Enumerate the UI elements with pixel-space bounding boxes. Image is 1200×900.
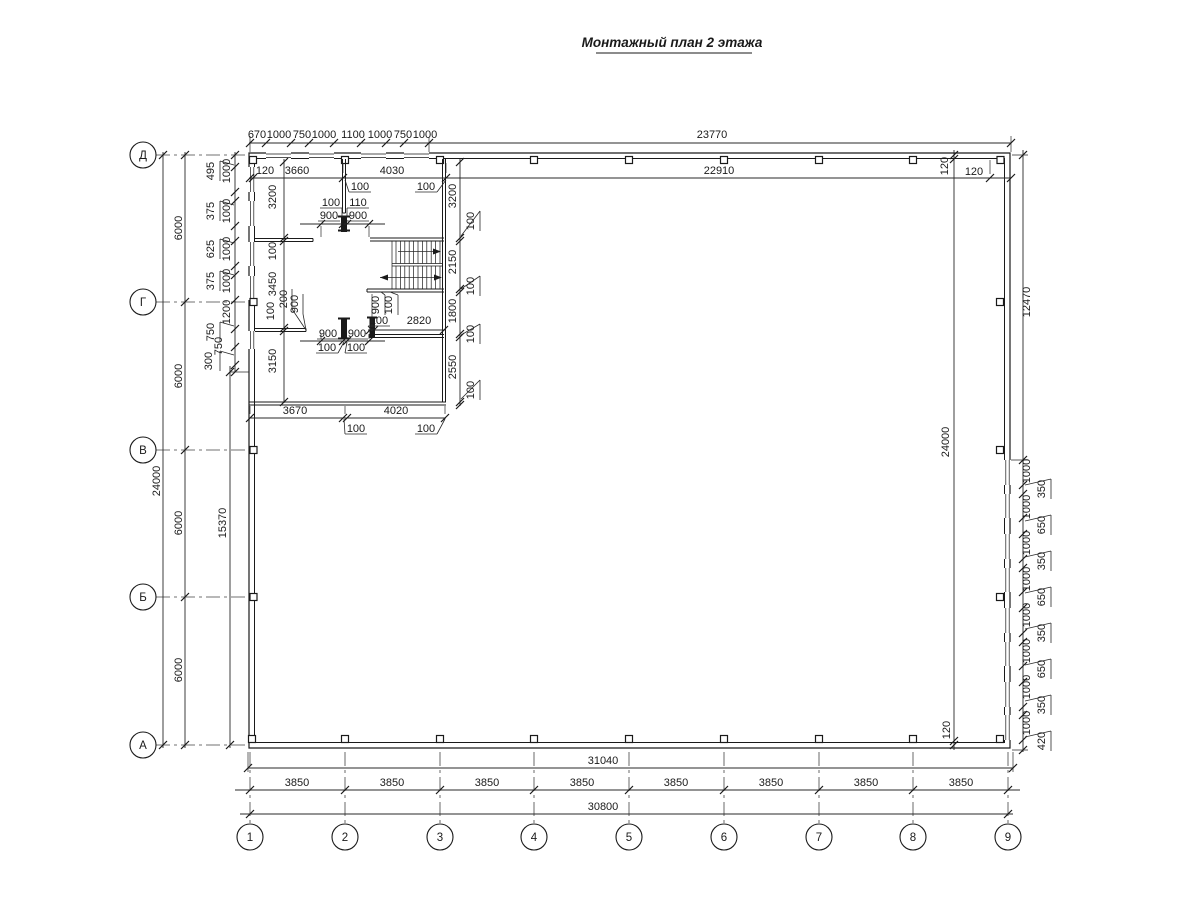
dim-label: 3670 (283, 405, 307, 417)
dim-label: 100 (370, 315, 388, 327)
dim-label: 900 (319, 328, 337, 340)
leader-lines (220, 161, 1051, 751)
dim-label: 1000 (267, 129, 291, 141)
axis-col-label: 2 (342, 832, 348, 844)
axis-markers-cols: 1 2 3 4 5 6 7 8 9 (237, 824, 1021, 850)
dim-label: 1000 (413, 129, 437, 141)
dimension-labels-left-windows: 495 375 625 375 750 300 1000 1000 1000 1… (203, 159, 233, 370)
dim-label: 3200 (447, 184, 459, 208)
dim-label: 100 (322, 197, 340, 209)
dim-label: 1200 (221, 300, 233, 324)
dim-label: 2150 (447, 250, 459, 274)
dim-label: 22910 (704, 165, 735, 177)
dim-label: 31040 (588, 755, 619, 767)
dimension-labels-right: 24000 12470 120 1000 1000 1000 1000 1000… (940, 287, 1048, 750)
window-openings (248, 152, 1011, 740)
axis-row-label: Б (139, 592, 147, 604)
dim-label: 6000 (173, 658, 185, 682)
dim-label: 100 (351, 181, 369, 193)
dim-label: 3150 (267, 349, 279, 373)
dim-label: 100 (347, 423, 365, 435)
axis-col-label: 6 (721, 832, 727, 844)
dim-label: 120 (941, 721, 953, 739)
dim-label: 120 (256, 165, 274, 177)
dim-label: 100 (318, 342, 336, 354)
axis-row-label: Д (139, 150, 147, 162)
dim-label: 100 (465, 325, 477, 343)
dim-label: 375 (205, 272, 217, 290)
dim-label: 15370 (217, 508, 229, 539)
dim-label: 420 (1036, 732, 1048, 750)
axis-col-label: 7 (816, 832, 822, 844)
dim-label: 3850 (380, 777, 404, 789)
dim-label: 24000 (940, 427, 952, 458)
axis-col-label: 4 (531, 832, 538, 844)
dim-label: 2550 (447, 355, 459, 379)
dim-label: 6000 (173, 216, 185, 240)
dim-label: 3850 (570, 777, 594, 789)
dim-label: 350 (1036, 696, 1048, 714)
dim-label: 30800 (588, 801, 619, 813)
dim-label: 900 (349, 210, 367, 222)
dim-label: 1000 (1021, 639, 1033, 663)
dim-label: 350 (1036, 480, 1048, 498)
dim-label: 900 (289, 295, 301, 313)
stair-arrow-right-icon (434, 275, 442, 281)
dim-label: 670 (248, 129, 266, 141)
dim-label: 900 (320, 210, 338, 222)
floor-plan-drawing: Монтажный план 2 этажа (0, 0, 1200, 900)
dim-label: 6000 (173, 511, 185, 535)
axis-row-label: А (139, 740, 147, 752)
dim-label: 1000 (1021, 567, 1033, 591)
dim-label: 900 (370, 296, 382, 314)
dim-label: 100 (347, 342, 365, 354)
dim-label: 100 (267, 242, 279, 260)
dim-label: 650 (1036, 588, 1048, 606)
dim-label: 1000 (221, 199, 233, 223)
dim-label: 750 (293, 129, 311, 141)
dim-label: 750 (394, 129, 412, 141)
dim-label: 120 (939, 157, 951, 175)
dim-label: 100 (465, 381, 477, 399)
dim-label: 350 (1036, 624, 1048, 642)
dim-label: 3850 (285, 777, 309, 789)
dim-label: 1000 (1021, 603, 1033, 627)
dim-label: 1000 (1021, 459, 1033, 483)
dim-label: 1000 (221, 159, 233, 183)
axis-row-label: Г (140, 297, 147, 309)
dimension-lines (163, 143, 1023, 814)
dim-label: 900 (348, 328, 366, 340)
axis-col-label: 9 (1005, 832, 1011, 844)
dim-label: 120 (965, 166, 983, 178)
dim-label: 6000 (173, 364, 185, 388)
dim-label: 3660 (285, 165, 309, 177)
dim-label: 1800 (447, 299, 459, 323)
dim-label: 1000 (221, 237, 233, 261)
stair-arrow-left-icon (380, 275, 388, 281)
dim-label: 100 (465, 212, 477, 230)
dim-label: 495 (205, 162, 217, 180)
columns (249, 157, 1005, 743)
dim-label: 1000 (368, 129, 392, 141)
dim-label: 1000 (1021, 675, 1033, 699)
dim-label: 1000 (1021, 495, 1033, 519)
dim-label: 100 (417, 423, 435, 435)
dim-label: 3850 (475, 777, 499, 789)
axis-col-label: 5 (626, 832, 632, 844)
dim-label: 625 (205, 240, 217, 258)
dim-label: 1000 (1021, 711, 1033, 735)
dim-label: 4030 (380, 165, 404, 177)
dim-label: 1000 (221, 269, 233, 293)
dim-label: 750 (213, 337, 225, 355)
dim-label: 350 (1036, 552, 1048, 570)
dim-label: 1100 (341, 129, 365, 141)
dim-label: 12470 (1021, 287, 1033, 318)
perimeter-walls (249, 153, 1010, 748)
dim-label: 100 (383, 296, 395, 314)
dim-label: 100 (265, 302, 277, 320)
dim-label: 650 (1036, 660, 1048, 678)
drawing-title: Монтажный план 2 этажа (582, 35, 763, 50)
dim-label: 1000 (1021, 531, 1033, 555)
dim-label: 1000 (312, 129, 336, 141)
dim-label: 100 (417, 181, 435, 193)
dimension-ticks (159, 139, 1027, 818)
axis-col-label: 3 (437, 832, 443, 844)
dim-label: 3850 (949, 777, 973, 789)
dim-label: 650 (1036, 516, 1048, 534)
staircase (367, 238, 444, 292)
dim-label: 24000 (151, 466, 163, 497)
dim-label: 100 (465, 277, 477, 295)
axis-col-label: 8 (910, 832, 916, 844)
dim-label: 3850 (759, 777, 783, 789)
dim-label: 23770 (697, 129, 728, 141)
dim-label: 110 (349, 197, 367, 209)
axis-col-label: 1 (247, 832, 253, 844)
dim-label: 3850 (664, 777, 688, 789)
dim-label: 3850 (854, 777, 878, 789)
dim-label: 3200 (267, 185, 279, 209)
axis-markers-rows: Д Г В Б А (130, 142, 156, 758)
dim-label: 4020 (384, 405, 408, 417)
dim-label: 2820 (407, 315, 431, 327)
dim-label: 375 (205, 202, 217, 220)
axis-row-label: В (139, 445, 147, 457)
